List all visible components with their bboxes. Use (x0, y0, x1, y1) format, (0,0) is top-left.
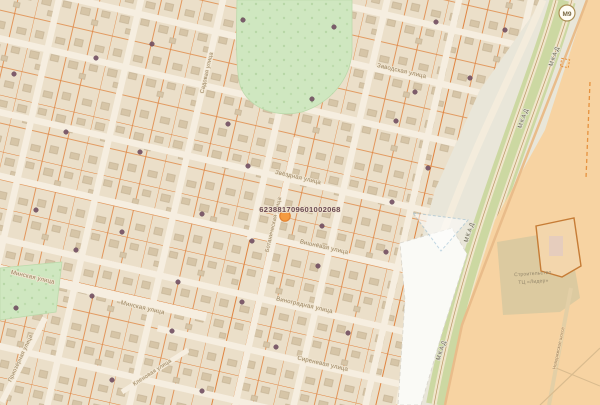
construction-building (549, 236, 563, 256)
route-badge-label: М9 (562, 11, 571, 18)
cadastral-map: Садовая улица Заводская улица Звёздная у… (0, 0, 600, 405)
park-left-texture (0, 262, 62, 320)
cadastral-number-label: 623881709601002068 (259, 205, 340, 214)
map-canvas[interactable]: Садовая улица Заводская улица Звёздная у… (0, 0, 600, 405)
route-badge: М9 (559, 5, 575, 21)
